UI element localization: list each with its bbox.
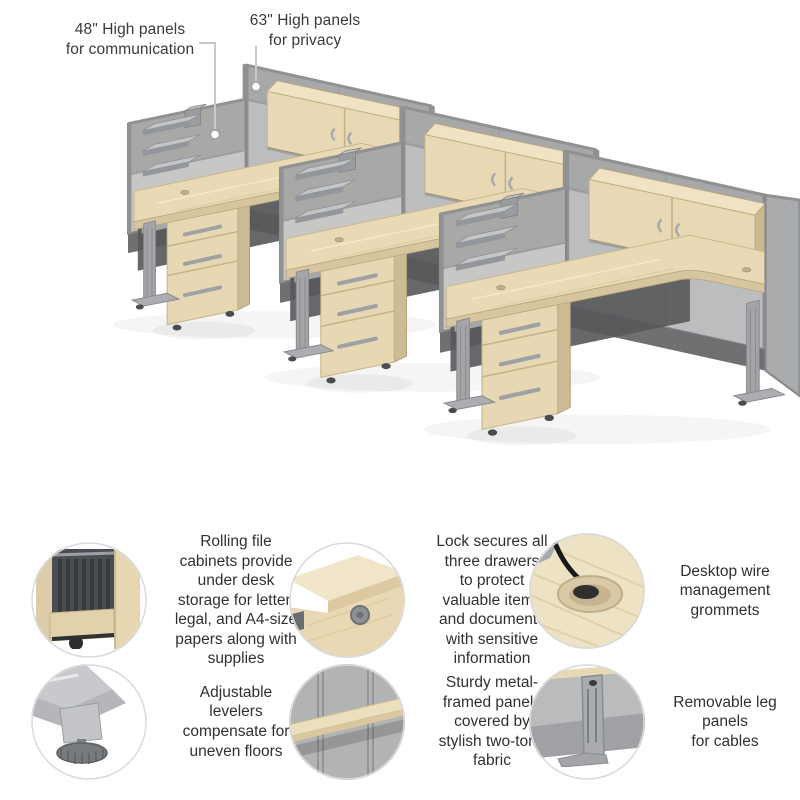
feature-adjustable-levelers: Adjustable levelers compensate for uneve… — [30, 663, 312, 781]
feature-text: Removable leg panels for cables — [658, 693, 792, 752]
leg-panel-icon — [582, 675, 604, 757]
caster-icon — [69, 636, 83, 650]
file-rail-icon — [54, 553, 114, 555]
panel-fabric-photo — [288, 663, 406, 781]
desktop-grommet-photo — [528, 532, 646, 650]
leveler-foot-photo — [30, 663, 148, 781]
feature-rolling-file-cabinets: Rolling file cabinets provide under desk… — [30, 532, 312, 669]
feature-drawer-lock: Lock secures all three drawers to protec… — [288, 532, 566, 669]
callout-dot-icon — [211, 130, 220, 139]
callout-63-high-panels: 63" High panels for privacy — [222, 11, 388, 50]
feature-text: Desktop wire management grommets — [658, 562, 792, 621]
open-file-drawer-photo — [30, 541, 148, 659]
feature-wire-grommets: Desktop wire management grommets — [528, 532, 792, 650]
callout-dot-icon — [252, 82, 261, 91]
workstation-illustration — [0, 0, 800, 500]
callout-48-high-panels: 48" High panels for communication — [40, 20, 220, 59]
feature-two-tone-panels: Sturdy metal- framed panels covered by s… — [288, 663, 566, 781]
leg-panel-photo — [528, 663, 646, 781]
end-panel — [766, 195, 800, 398]
cable-hole-icon — [589, 680, 597, 686]
caster-icon — [738, 401, 746, 406]
feature-leg-panels: Removable leg panels for cables — [528, 663, 792, 781]
drawer-lock-photo — [288, 541, 406, 659]
product-infographic: 48" High panels for communication 63" Hi… — [0, 0, 800, 800]
